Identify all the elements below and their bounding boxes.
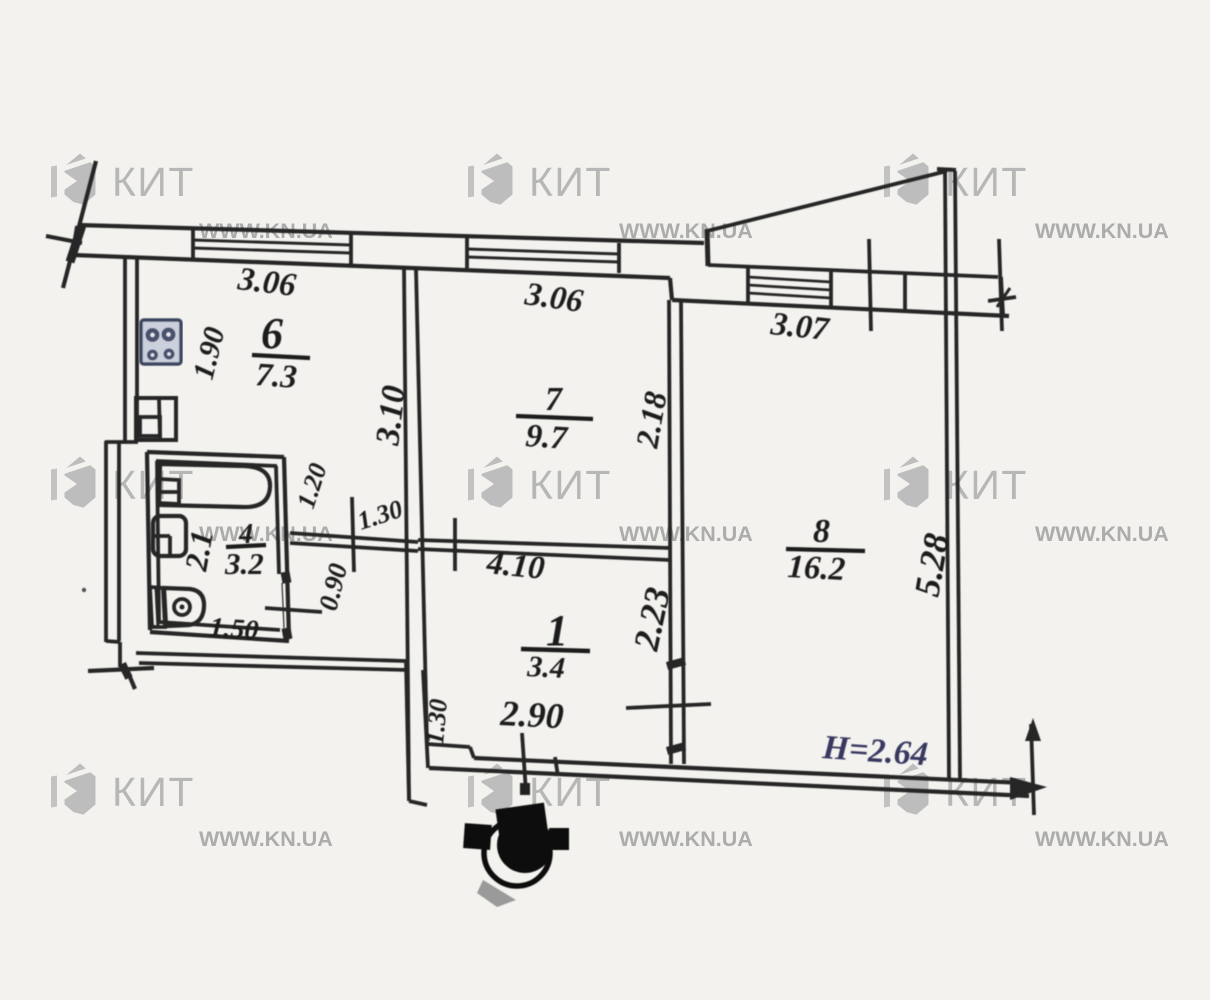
svg-text:2.18: 2.18 <box>628 389 673 451</box>
svg-text:8: 8 <box>813 513 830 550</box>
svg-text:3.2: 3.2 <box>224 546 264 581</box>
svg-text:1.90: 1.90 <box>187 324 232 383</box>
svg-text:1.50: 1.50 <box>209 612 260 646</box>
svg-text:3.06: 3.06 <box>522 276 586 320</box>
svg-text:6: 6 <box>261 309 283 358</box>
svg-text:3.07: 3.07 <box>768 306 832 348</box>
svg-text:7: 7 <box>545 381 564 418</box>
svg-text:1.30: 1.30 <box>354 494 406 536</box>
svg-text:16.2: 16.2 <box>787 549 847 588</box>
svg-text:2.90: 2.90 <box>499 693 565 736</box>
svg-text:2.1: 2.1 <box>177 528 220 575</box>
svg-text:9.7: 9.7 <box>524 418 569 457</box>
svg-text:7.3: 7.3 <box>254 357 298 396</box>
svg-text:1.30: 1.30 <box>420 698 453 746</box>
svg-text:3.10: 3.10 <box>369 383 413 448</box>
svg-text:4.10: 4.10 <box>484 545 546 587</box>
svg-text:1.20: 1.20 <box>291 460 333 512</box>
svg-text:3.4: 3.4 <box>526 650 566 685</box>
svg-text:3.06: 3.06 <box>235 261 298 304</box>
svg-text:H=2.64: H=2.64 <box>820 729 929 773</box>
svg-text:0.90: 0.90 <box>313 560 354 614</box>
